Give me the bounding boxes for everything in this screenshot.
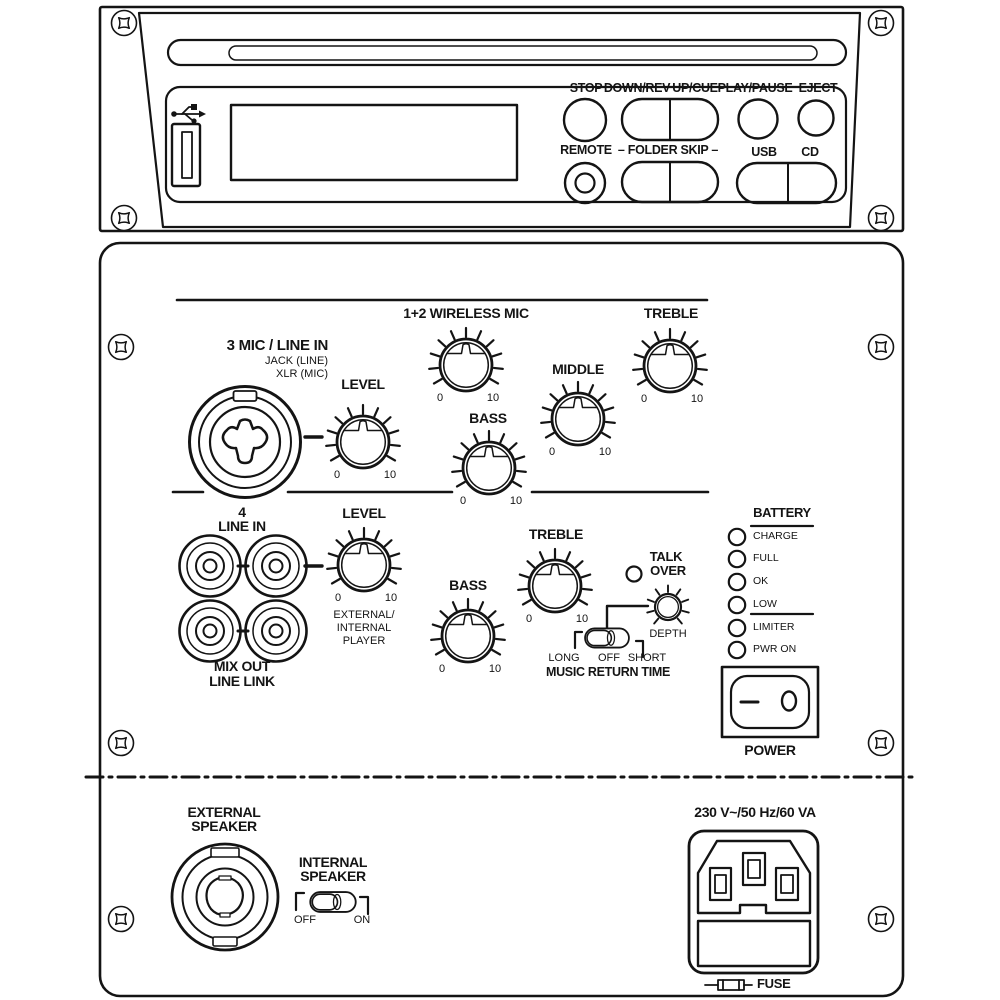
stop-label: STOP	[570, 82, 603, 95]
power-label: POWER	[744, 743, 795, 758]
scale-min: 0	[334, 470, 340, 482]
battery-title: BATTERY	[753, 506, 811, 520]
mic3-sub-xlr: XLR (MIC)	[276, 369, 328, 381]
music-return-time-switch[interactable]	[585, 628, 629, 647]
fuse-label: FUSE	[757, 977, 790, 991]
player-level-sub3: PLAYER	[343, 636, 386, 648]
mrt-long-label: LONG	[548, 653, 579, 665]
scale-max: 10	[599, 447, 611, 459]
scale-min: 0	[460, 496, 466, 508]
led-label-ok: OK	[753, 576, 768, 587]
lcd-display	[231, 105, 517, 180]
external-speaker-label2: SPEAKER	[191, 819, 257, 834]
scale-max: 10	[510, 496, 522, 508]
line-in-rca-right	[246, 536, 307, 597]
mic3-title: 3 MIC / LINE IN	[227, 338, 328, 354]
mrt-short-label: SHORT	[628, 653, 666, 665]
remote-label: REMOTE	[560, 144, 612, 157]
scale-max: 10	[576, 614, 588, 626]
scale-max: 10	[489, 664, 501, 676]
usb-label: USB	[751, 146, 777, 159]
scale-min: 0	[439, 664, 445, 676]
treble1-label: TREBLE	[644, 306, 698, 321]
cd-label: CD	[801, 146, 818, 159]
up-cue-label: UP/CUE	[672, 82, 717, 95]
mrt-title: MUSIC RETURN TIME	[546, 666, 670, 679]
device-rear-panel-diagram: STOP DOWN/REV UP/CUE PLAY/PAUSE EJECT RE…	[0, 0, 1000, 1000]
scale-min: 0	[641, 394, 647, 406]
talkover-label2: OVER	[650, 564, 686, 578]
internal-speaker-off-label: OFF	[294, 915, 316, 927]
screw-icon	[869, 907, 894, 932]
screw-icon	[112, 206, 137, 231]
screw-icon	[112, 11, 137, 36]
line-in-rca-left	[180, 536, 241, 597]
eject-label: EJECT	[799, 82, 838, 95]
mains-rating-label: 230 V~/50 Hz/60 VA	[694, 805, 816, 820]
mix-out-label2: LINE LINK	[209, 674, 275, 689]
scale-min: 0	[526, 614, 532, 626]
internal-speaker-on-label: ON	[354, 915, 371, 927]
folder-skip-label: – FOLDER SKIP –	[618, 144, 718, 157]
depth-label: DEPTH	[649, 629, 686, 641]
screw-icon	[109, 907, 134, 932]
scale-max: 10	[385, 593, 397, 605]
scale-min: 0	[437, 393, 443, 405]
mrt-off-label: OFF	[598, 653, 620, 665]
treble2-label: TREBLE	[529, 527, 583, 542]
mix-out-rca-left	[180, 601, 241, 662]
wireless-mic-label: 1+2 WIRELESS MIC	[403, 306, 529, 321]
screw-icon	[869, 206, 894, 231]
led-label-charge: CHARGE	[753, 531, 798, 542]
cd-player-panel	[100, 7, 903, 231]
middle-label: MIDDLE	[552, 362, 604, 377]
scale-min: 0	[335, 593, 341, 605]
player-level-sub1: EXTERNAL/	[333, 610, 394, 622]
talkover-label1: TALK	[650, 550, 683, 564]
screw-icon	[869, 731, 894, 756]
led-label-limiter: LIMITER	[753, 622, 794, 633]
mix-out-label1: MIX OUT	[214, 659, 270, 674]
internal-speaker-label2: SPEAKER	[300, 869, 366, 884]
scale-max: 10	[384, 470, 396, 482]
bass2-label: BASS	[449, 578, 487, 593]
scale-max: 10	[691, 394, 703, 406]
led-label-full: FULL	[753, 553, 779, 564]
scale-max: 10	[487, 393, 499, 405]
down-rev-label: DOWN/REV	[604, 82, 670, 95]
screw-icon	[109, 731, 134, 756]
internal-speaker-switch[interactable]	[310, 892, 355, 912]
screw-icon	[869, 11, 894, 36]
line4-label: LINE IN	[218, 519, 266, 534]
play-pause-label: PLAY/PAUSE	[718, 82, 793, 95]
mic-level-label: LEVEL	[341, 377, 385, 392]
mic3-sub-jack: JACK (LINE)	[265, 356, 328, 368]
mix-out-rca-right	[246, 601, 307, 662]
bass1-label: BASS	[469, 411, 507, 426]
led-label-pwr-on: PWR ON	[753, 644, 796, 655]
screw-icon	[869, 335, 894, 360]
player-level-sub2: INTERNAL	[337, 623, 391, 635]
led-label-low: LOW	[753, 599, 777, 610]
scale-min: 0	[549, 447, 555, 459]
screw-icon	[109, 335, 134, 360]
player-level-label: LEVEL	[342, 506, 386, 521]
mixer-panel	[86, 243, 914, 996]
